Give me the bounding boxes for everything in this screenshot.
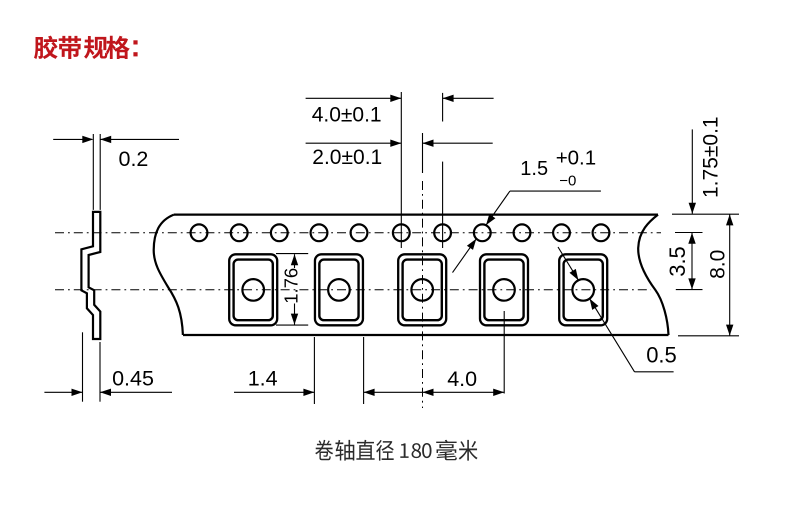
svg-text:0.5: 0.5	[646, 343, 677, 368]
svg-text:1.4: 1.4	[248, 367, 278, 391]
svg-text:1.76: 1.76	[280, 268, 301, 304]
svg-text:2.0±0.1: 2.0±0.1	[312, 146, 382, 169]
svg-text:8.0: 8.0	[707, 250, 730, 279]
svg-text:4.0±0.1: 4.0±0.1	[312, 103, 382, 126]
svg-text:0.45: 0.45	[112, 366, 154, 390]
svg-text:1.5: 1.5	[520, 158, 548, 180]
svg-text:+0.1: +0.1	[556, 146, 596, 169]
svg-text:3.5: 3.5	[665, 246, 690, 277]
svg-text:4.0: 4.0	[447, 367, 477, 391]
svg-text:1.75±0.1: 1.75±0.1	[700, 116, 723, 198]
svg-text:0.2: 0.2	[119, 147, 149, 171]
svg-text:−0: −0	[559, 172, 576, 189]
